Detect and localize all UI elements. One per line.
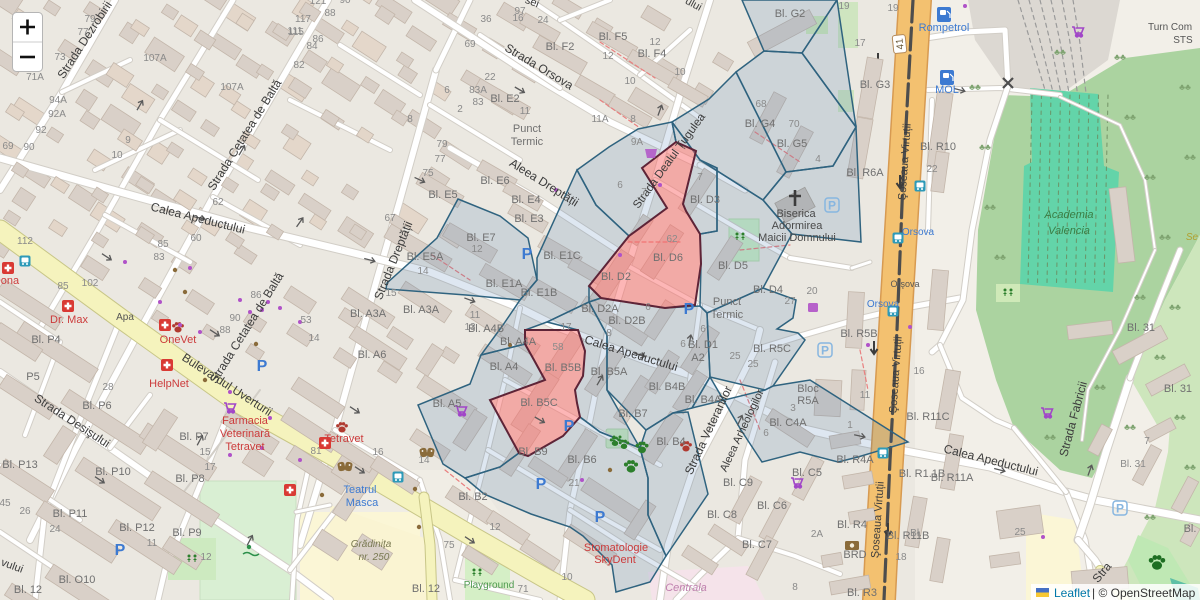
svg-text:♣♣: ♣♣ [979, 142, 991, 152]
svg-text:12: 12 [602, 51, 614, 62]
svg-text:Bl. B2: Bl. B2 [458, 491, 487, 503]
svg-text:Bl. F4: Bl. F4 [638, 48, 667, 60]
svg-text:Bl. E1C: Bl. E1C [543, 250, 580, 262]
svg-text:67: 67 [384, 213, 396, 224]
svg-text:Bl. R11B: Bl. R11B [887, 530, 930, 542]
svg-text:6: 6 [645, 302, 651, 313]
svg-text:Bl. B5B: Bl. B5B [545, 362, 582, 374]
svg-text:MOL: MOL [935, 84, 959, 96]
svg-text:11: 11 [860, 390, 871, 401]
svg-text:OneVet: OneVet [160, 334, 197, 346]
svg-text:75: 75 [443, 540, 455, 551]
svg-text:45: 45 [0, 498, 11, 509]
svg-text:Bl. P11: Bl. P11 [53, 508, 88, 520]
svg-text:69: 69 [464, 39, 476, 50]
svg-text:Biserica: Biserica [776, 208, 816, 220]
svg-text:Bl. A6: Bl. A6 [358, 349, 387, 361]
svg-text:Maicii Domnului: Maicii Domnului [758, 232, 836, 244]
svg-text:53: 53 [300, 315, 312, 326]
svg-text:20: 20 [806, 286, 818, 297]
svg-text:9A: 9A [631, 137, 644, 148]
svg-text:15: 15 [385, 288, 397, 299]
svg-text:36: 36 [480, 14, 492, 25]
svg-text:11: 11 [147, 538, 158, 549]
svg-text:Teatrul: Teatrul [343, 484, 376, 496]
svg-text:♣♣: ♣♣ [1169, 302, 1181, 312]
svg-text:11A: 11A [591, 114, 608, 125]
svg-text:2: 2 [457, 104, 463, 115]
svg-text:17: 17 [204, 462, 216, 473]
svg-text:6: 6 [680, 339, 686, 350]
svg-text:Bl. B4: Bl. B4 [656, 436, 685, 448]
svg-text:P: P [684, 301, 695, 318]
svg-text:♣♣: ♣♣ [1094, 382, 1106, 392]
svg-text:Farmacia: Farmacia [222, 415, 269, 427]
svg-text:Bl. C8: Bl. C8 [707, 509, 737, 521]
svg-text:Termic: Termic [711, 309, 744, 321]
svg-text:Orsova: Orsova [902, 227, 935, 238]
svg-text:Bl. E2: Bl. E2 [490, 93, 519, 105]
svg-text:Bl. A3A: Bl. A3A [350, 308, 387, 320]
svg-text:BRD: BRD [843, 549, 866, 561]
svg-text:♣♣: ♣♣ [1144, 172, 1156, 182]
svg-text:R5A: R5A [797, 395, 819, 407]
svg-text:Valencia: Valencia [1048, 225, 1090, 237]
svg-text:Rompetrol: Rompetrol [919, 22, 970, 34]
svg-text:♣♣: ♣♣ [969, 82, 981, 92]
svg-text:♣♣: ♣♣ [984, 202, 996, 212]
svg-text:| © OpenStreetMap: | © OpenStreetMap [1092, 586, 1196, 600]
svg-text:Bl. 12: Bl. 12 [412, 583, 440, 595]
svg-text:Dona: Dona [0, 275, 20, 287]
svg-text:Stomatologie: Stomatologie [584, 542, 648, 554]
svg-text:Bl. B5A: Bl. B5A [591, 366, 628, 378]
svg-text:♣♣: ♣♣ [1124, 422, 1136, 432]
svg-text:Bl. D6: Bl. D6 [653, 252, 683, 264]
svg-text:Orsova: Orsova [867, 299, 900, 310]
svg-text:90: 90 [229, 313, 241, 324]
svg-text:P: P [828, 199, 836, 213]
svg-text:83A: 83A [469, 85, 487, 96]
svg-text:Bl. E6: Bl. E6 [480, 175, 509, 187]
svg-text:Bl. E5A: Bl. E5A [407, 251, 444, 263]
svg-text:P: P [564, 418, 575, 435]
svg-text:Bl. R11C: Bl. R11C [906, 411, 949, 423]
svg-text:Masca: Masca [346, 497, 379, 509]
svg-text:85: 85 [57, 281, 69, 292]
svg-text:Bl. C5: Bl. C5 [792, 467, 822, 479]
svg-text:10: 10 [674, 67, 686, 78]
svg-text:Bl. A5: Bl. A5 [433, 398, 462, 410]
svg-text:62: 62 [666, 234, 678, 245]
svg-text:25: 25 [1014, 527, 1026, 538]
svg-text:P: P [115, 542, 126, 559]
svg-text:8: 8 [630, 114, 636, 125]
svg-text:♣♣: ♣♣ [1179, 82, 1191, 92]
svg-text:121: 121 [310, 0, 327, 7]
svg-text:Bl. D4: Bl. D4 [753, 284, 783, 296]
svg-text:11: 11 [470, 310, 481, 321]
svg-text:69: 69 [2, 141, 14, 152]
svg-text:Tetravet: Tetravet [225, 441, 264, 453]
svg-text:Bl. D2B: Bl. D2B [608, 315, 645, 327]
svg-text:10: 10 [111, 150, 123, 161]
svg-text:24: 24 [537, 15, 549, 26]
svg-text:12: 12 [489, 522, 501, 533]
svg-text:Orşova: Orşova [890, 279, 919, 289]
svg-text:Bl. D3: Bl. D3 [690, 194, 720, 206]
svg-text:9: 9 [125, 135, 131, 146]
svg-text:Bl. D1: Bl. D1 [688, 339, 718, 351]
svg-text:Bl. 31: Bl. 31 [1120, 459, 1146, 470]
svg-text:90: 90 [339, 0, 351, 6]
svg-text:73: 73 [54, 52, 66, 63]
svg-text:71: 71 [517, 584, 529, 595]
svg-text:♣♣: ♣♣ [1054, 47, 1066, 57]
svg-text:Bl. R4: Bl. R4 [837, 519, 867, 531]
svg-text:Centrala: Centrala [665, 582, 707, 594]
svg-text:Tetravet: Tetravet [324, 433, 363, 445]
svg-text:Bl. R3: Bl. R3 [847, 587, 877, 599]
svg-text:SkyDent: SkyDent [594, 554, 636, 566]
svg-text:Bloc: Bloc [797, 383, 819, 395]
svg-text:82: 82 [293, 60, 305, 71]
svg-text:Bl. P4: Bl. P4 [31, 334, 60, 346]
svg-text:14: 14 [417, 266, 429, 277]
svg-text:Bl. R1.1B: Bl. R1.1B [899, 468, 945, 480]
svg-text:24: 24 [49, 524, 61, 535]
svg-text:Bl. E1B: Bl. E1B [521, 287, 558, 299]
svg-text:Playground: Playground [464, 580, 515, 591]
svg-text:117: 117 [295, 14, 311, 25]
svg-text:Bl. G3: Bl. G3 [860, 79, 891, 91]
svg-text:68: 68 [755, 99, 767, 110]
svg-text:3: 3 [790, 403, 796, 414]
svg-text:Bl. R6A: Bl. R6A [846, 167, 884, 179]
svg-text:P: P [522, 246, 533, 263]
svg-text:Bl. F2: Bl. F2 [546, 41, 575, 53]
svg-text:81: 81 [310, 446, 322, 457]
svg-text:102: 102 [82, 278, 99, 289]
svg-text:♣♣: ♣♣ [994, 252, 1006, 262]
svg-text:Leaflet: Leaflet [1054, 586, 1091, 600]
svg-text:90: 90 [23, 142, 35, 153]
svg-text:Bl. P13: Bl. P13 [2, 459, 37, 471]
svg-text:15: 15 [199, 447, 211, 458]
svg-text:Bl. P12: Bl. P12 [119, 522, 154, 534]
svg-text:P5: P5 [26, 371, 39, 383]
svg-text:Bl. E4: Bl. E4 [511, 194, 540, 206]
svg-text:85: 85 [157, 239, 169, 250]
svg-text:♣♣: ♣♣ [1124, 112, 1136, 122]
svg-text:107A: 107A [220, 82, 244, 93]
svg-text:97: 97 [514, 6, 526, 17]
svg-text:94A: 94A [49, 95, 67, 106]
svg-text:Bl. O10: Bl. O10 [59, 574, 96, 586]
svg-text:8: 8 [606, 328, 612, 339]
svg-text:Apa: Apa [116, 312, 134, 323]
svg-text:71A: 71A [26, 72, 44, 83]
svg-text:♣♣: ♣♣ [1184, 462, 1196, 472]
svg-text:7: 7 [697, 172, 703, 183]
svg-text:Bl. A4: Bl. A4 [490, 361, 519, 373]
svg-text:Bl. 12: Bl. 12 [14, 584, 42, 596]
svg-text:Adormirea: Adormirea [772, 220, 824, 232]
svg-text:P: P [536, 476, 547, 493]
svg-text:Bl. A4A: Bl. A4A [500, 336, 537, 348]
svg-text:P: P [257, 358, 268, 375]
svg-text:♣♣: ♣♣ [1144, 512, 1156, 522]
svg-text:Se: Se [1186, 232, 1199, 243]
svg-text:17: 17 [560, 322, 572, 333]
svg-text:Bl. B5C: Bl. B5C [520, 397, 557, 409]
svg-text:♣♣: ♣♣ [1134, 292, 1146, 302]
svg-text:Bl. G4: Bl. G4 [745, 118, 776, 130]
svg-text:11: 11 [520, 106, 531, 117]
svg-text:Bl. B6: Bl. B6 [567, 454, 596, 466]
svg-text:14: 14 [418, 455, 430, 466]
svg-text:7: 7 [641, 187, 647, 198]
svg-text:Bl. 31: Bl. 31 [1164, 383, 1192, 395]
svg-text:1: 1 [847, 420, 853, 431]
svg-text:Dr. Max: Dr. Max [50, 314, 88, 326]
svg-text:Bl. R4A: Bl. R4A [836, 454, 874, 466]
svg-text:88: 88 [324, 8, 336, 19]
svg-text:Bl. B7: Bl. B7 [618, 408, 647, 420]
svg-text:6: 6 [444, 85, 450, 96]
svg-text:115: 115 [288, 27, 304, 38]
svg-text:Bl. E3: Bl. E3 [514, 213, 543, 225]
svg-text:Bl. 31: Bl. 31 [1127, 322, 1155, 334]
svg-text:70: 70 [788, 119, 800, 130]
svg-text:86: 86 [250, 290, 262, 301]
svg-text:Grădinița: Grădinița [351, 539, 392, 550]
svg-text:18: 18 [895, 552, 907, 563]
svg-text:STS: STS [1173, 35, 1193, 46]
svg-text:41: 41 [894, 37, 906, 50]
svg-text:12: 12 [649, 37, 661, 48]
svg-text:♣♣: ♣♣ [1044, 432, 1056, 442]
svg-text:P: P [595, 509, 606, 526]
svg-text:79: 79 [436, 139, 448, 150]
svg-text:Bl. R10: Bl. R10 [920, 141, 956, 153]
svg-text:Bl. B9: Bl. B9 [518, 446, 547, 458]
svg-text:Bl. G2: Bl. G2 [775, 8, 806, 20]
svg-text:79: 79 [84, 14, 96, 25]
svg-text:P: P [821, 344, 829, 358]
svg-text:♣♣: ♣♣ [1174, 412, 1186, 422]
svg-text:19: 19 [887, 3, 899, 14]
svg-text:♣♣: ♣♣ [1159, 232, 1171, 242]
svg-text:8: 8 [792, 582, 798, 593]
svg-text:Academia: Academia [1044, 209, 1094, 221]
svg-text:Bl. A3A: Bl. A3A [403, 304, 440, 316]
svg-text:HelpNet: HelpNet [149, 378, 189, 390]
svg-text:nr. 250: nr. 250 [359, 552, 390, 563]
svg-text:Termic: Termic [511, 136, 544, 148]
svg-text:22: 22 [926, 164, 938, 175]
svg-text:Bl. D2A: Bl. D2A [581, 303, 619, 315]
svg-text:92: 92 [35, 125, 47, 136]
svg-text:17: 17 [854, 38, 866, 49]
svg-text:Bl. P6: Bl. P6 [82, 400, 111, 412]
svg-text:88: 88 [219, 325, 231, 336]
svg-text:P: P [1116, 502, 1124, 516]
svg-text:Bl. P9: Bl. P9 [172, 527, 201, 539]
svg-text:Bl. D5: Bl. D5 [718, 260, 748, 272]
svg-text:25: 25 [729, 351, 741, 362]
svg-text:Bl. R5C: Bl. R5C [753, 343, 791, 355]
svg-text:83: 83 [472, 97, 484, 108]
svg-text:Bl. C9: Bl. C9 [723, 477, 753, 489]
svg-text:♣♣: ♣♣ [1184, 152, 1196, 162]
svg-text:Bl. B4B: Bl. B4B [649, 381, 686, 393]
svg-text:6: 6 [700, 324, 706, 335]
svg-text:Bl. P10: Bl. P10 [95, 466, 130, 478]
svg-text:12: 12 [200, 552, 212, 563]
svg-text:60: 60 [190, 233, 202, 244]
svg-text:92A: 92A [48, 109, 66, 120]
svg-text:Bl. F5: Bl. F5 [599, 31, 628, 43]
svg-text:Bl.: Bl. [1184, 523, 1197, 535]
svg-text:Bl. C4A: Bl. C4A [769, 417, 807, 429]
svg-text:Bl. C7: Bl. C7 [742, 539, 772, 551]
svg-text:Bl. E7: Bl. E7 [466, 232, 495, 244]
svg-text:112: 112 [17, 236, 33, 247]
svg-text:Bl. E1A: Bl. E1A [486, 278, 523, 290]
svg-text:Bl. G5: Bl. G5 [777, 138, 808, 150]
svg-text:62: 62 [212, 197, 224, 208]
svg-text:83: 83 [153, 252, 165, 263]
svg-text:Bl. P8: Bl. P8 [175, 473, 204, 485]
svg-text:Veterinară: Veterinară [220, 428, 271, 440]
svg-text:4: 4 [815, 154, 821, 165]
svg-text:12: 12 [471, 244, 483, 255]
svg-text:Bl. E5: Bl. E5 [428, 189, 457, 201]
svg-text:Turn Com: Turn Com [1148, 22, 1192, 33]
svg-text:7: 7 [1144, 436, 1150, 447]
svg-text:107A: 107A [143, 53, 167, 64]
svg-text:Bl. P7: Bl. P7 [179, 431, 208, 443]
svg-text:86: 86 [312, 34, 324, 45]
svg-text:♣♣: ♣♣ [1114, 52, 1126, 62]
svg-text:A2: A2 [691, 352, 704, 364]
svg-text:♣♣: ♣♣ [1154, 352, 1166, 362]
svg-text:6: 6 [617, 180, 623, 191]
svg-text:10: 10 [624, 76, 636, 87]
svg-text:13: 13 [464, 322, 476, 333]
svg-text:26: 26 [19, 506, 31, 517]
svg-text:Bl. B4A: Bl. B4A [685, 394, 722, 406]
svg-text:Punct: Punct [513, 123, 541, 135]
svg-text:28: 28 [102, 382, 114, 393]
svg-text:6: 6 [763, 428, 769, 439]
svg-text:Bl. C6: Bl. C6 [757, 500, 787, 512]
svg-text:22: 22 [484, 72, 496, 83]
svg-text:16: 16 [913, 366, 925, 377]
svg-text:14: 14 [308, 333, 320, 344]
svg-text:Punct: Punct [713, 296, 741, 308]
svg-text:75: 75 [422, 168, 434, 179]
svg-text:19: 19 [838, 1, 850, 12]
svg-text:8: 8 [407, 114, 413, 125]
svg-text:27: 27 [784, 296, 796, 307]
svg-text:16: 16 [372, 447, 384, 458]
svg-text:2A: 2A [811, 529, 824, 540]
svg-text:77: 77 [77, 27, 89, 38]
svg-text:Bl.: Bl. [910, 528, 922, 539]
svg-text:58: 58 [552, 342, 564, 353]
svg-text:Bl. D2: Bl. D2 [601, 271, 631, 283]
svg-text:77: 77 [434, 154, 446, 165]
svg-text:10: 10 [561, 572, 573, 583]
svg-text:Bl. R5B: Bl. R5B [840, 328, 877, 340]
svg-text:21: 21 [568, 478, 580, 489]
svg-text:25: 25 [747, 359, 759, 370]
